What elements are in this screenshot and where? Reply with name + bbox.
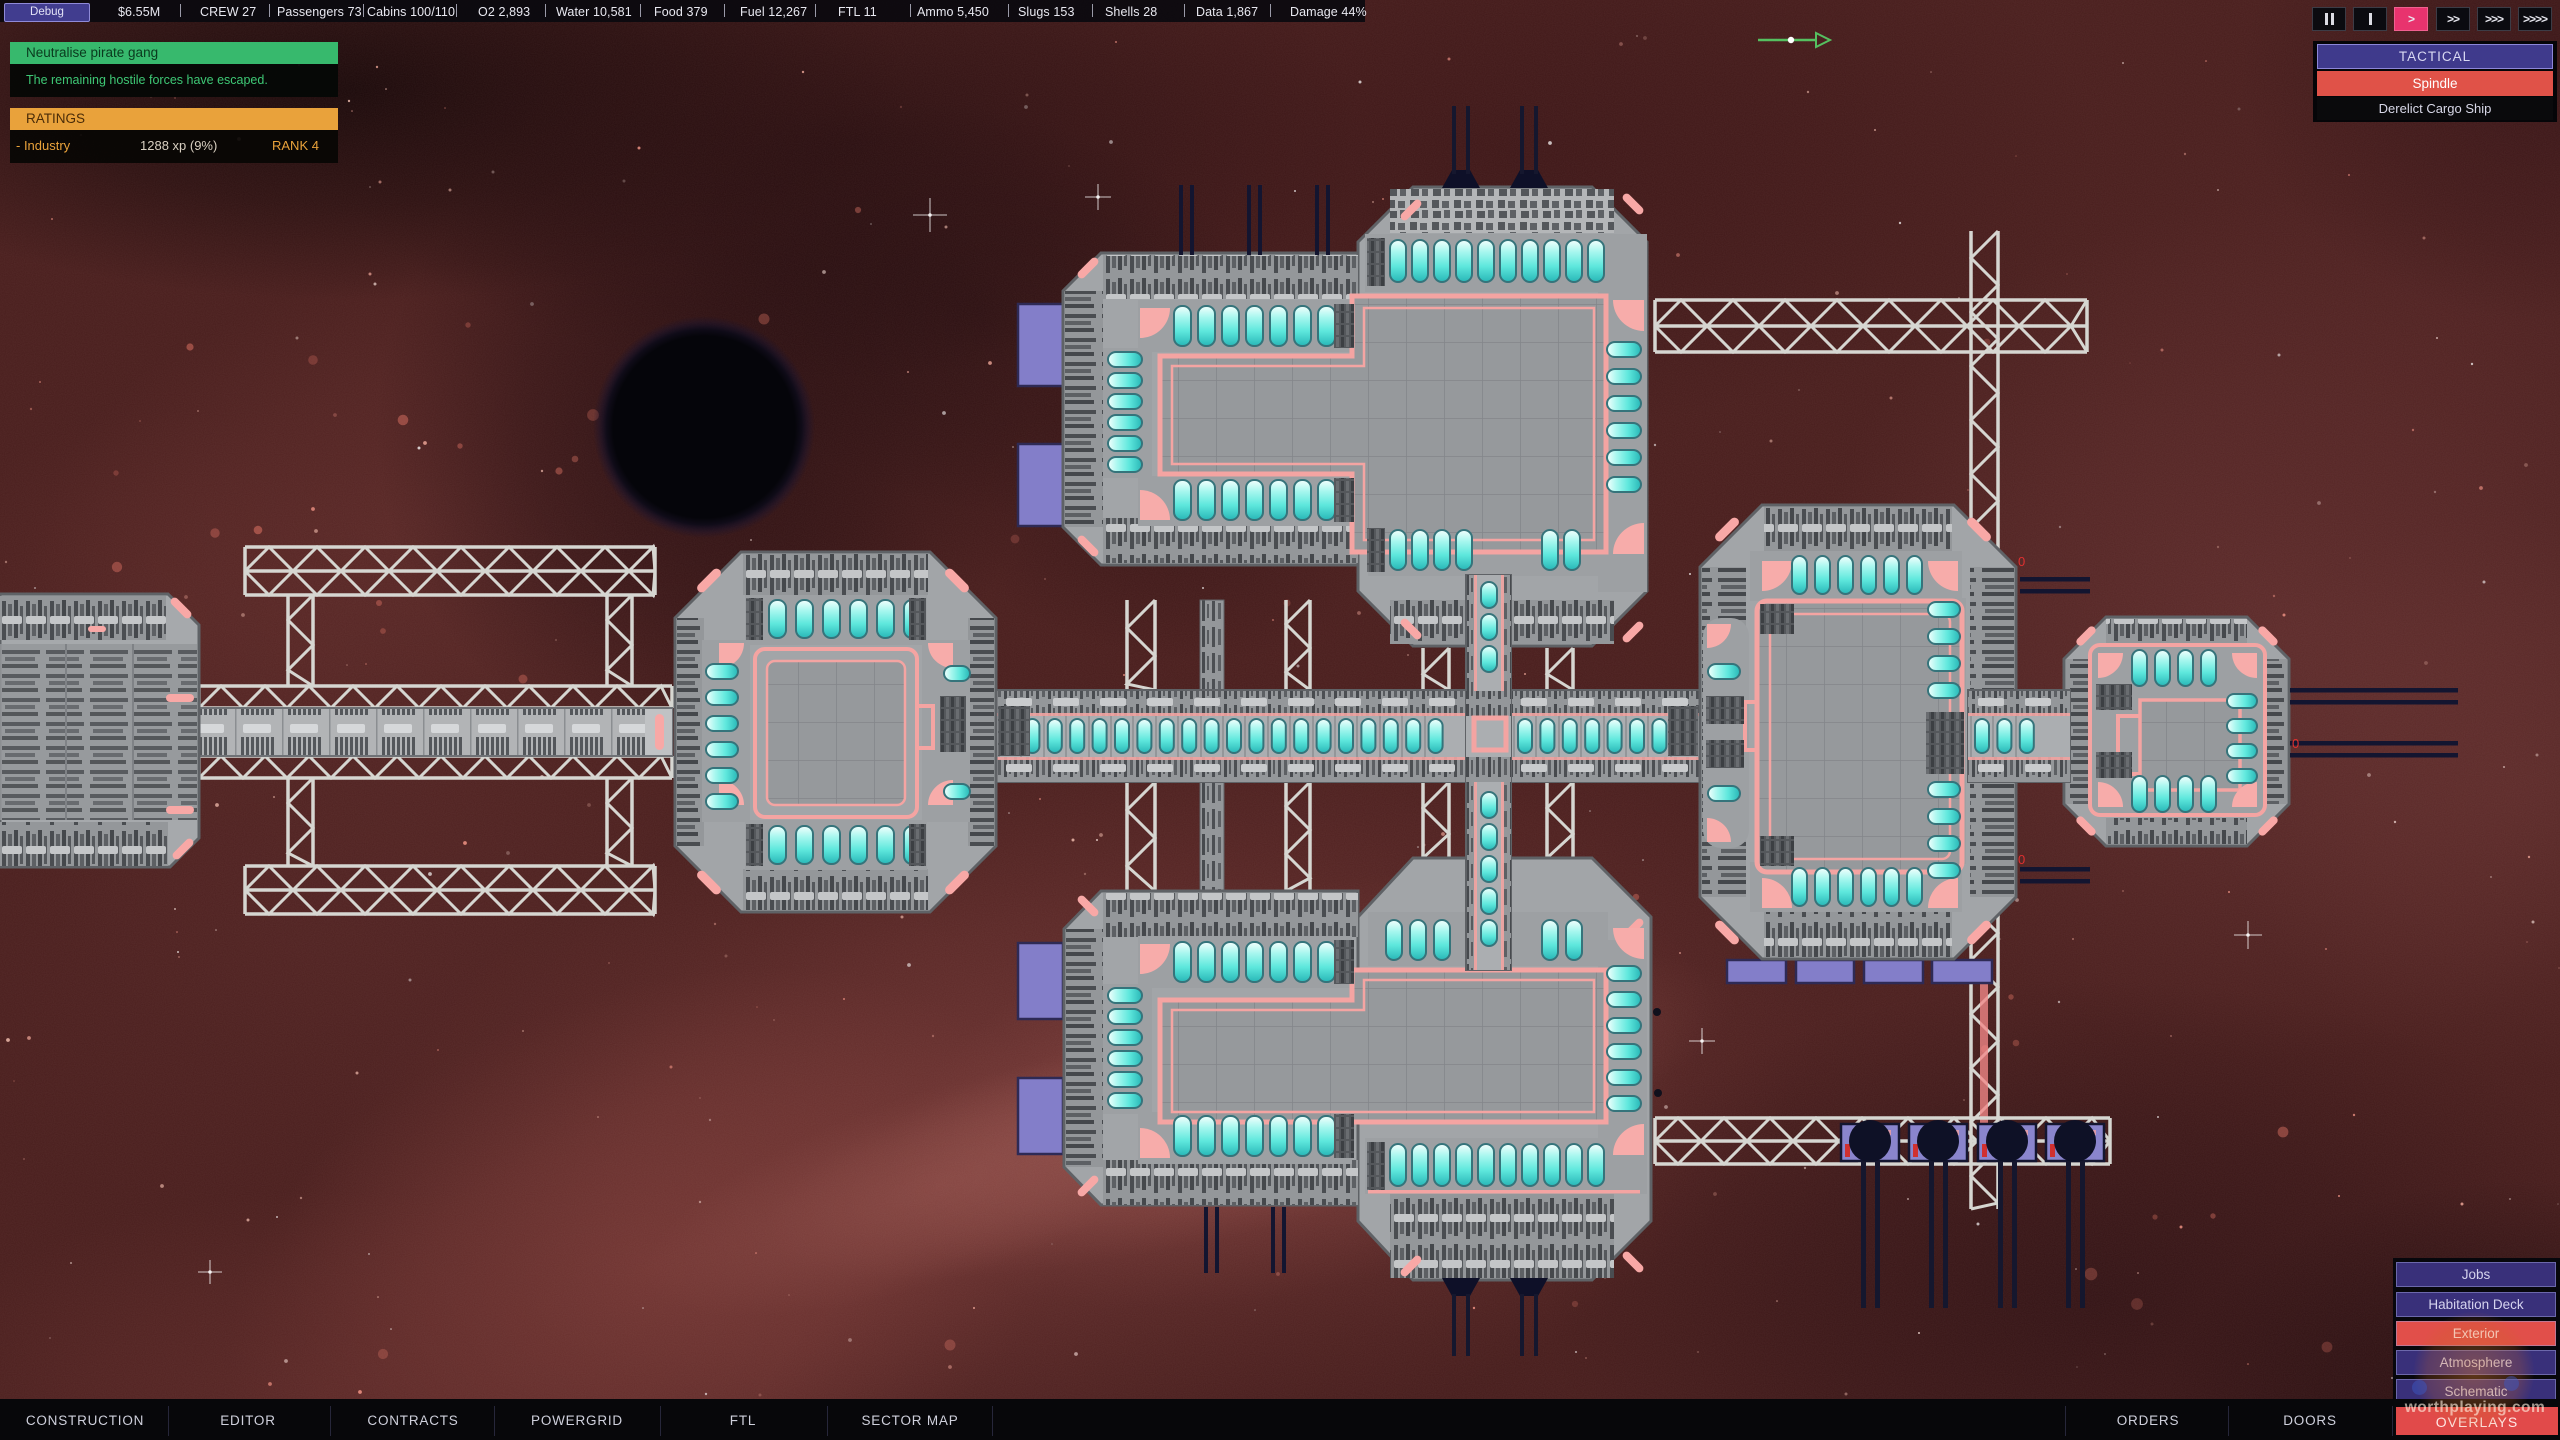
svg-text:0: 0	[2018, 852, 2025, 867]
svg-text:0: 0	[2018, 554, 2025, 569]
svg-text:0: 0	[2292, 736, 2299, 751]
